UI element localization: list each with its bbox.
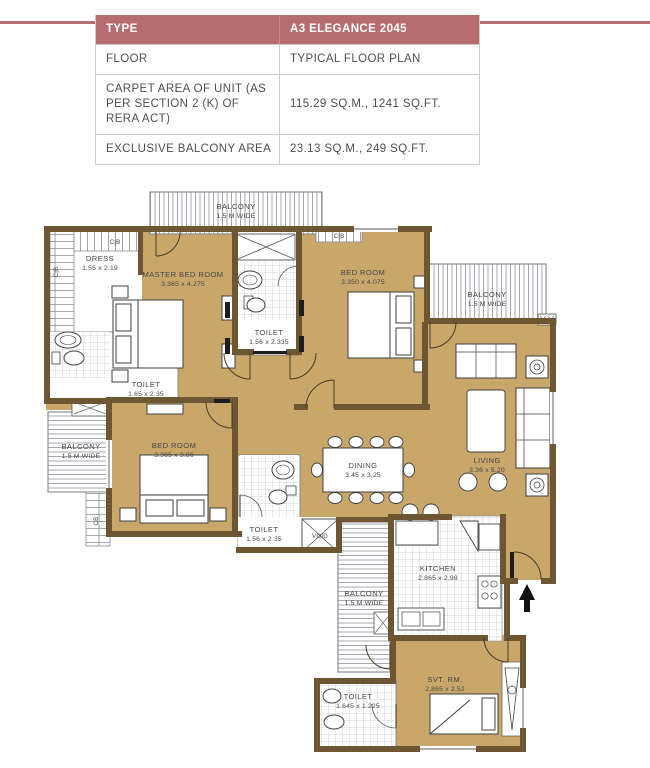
toilet-bottom-room	[316, 680, 396, 750]
chair-icon	[349, 437, 363, 448]
side-table-icon	[210, 508, 226, 521]
planter-icon	[526, 474, 548, 496]
basin-icon	[324, 715, 344, 729]
label-dress: DRESS	[86, 254, 114, 263]
chair-icon	[349, 493, 363, 504]
label-balcony-left-dims: 1.5 M WIDE	[62, 453, 101, 460]
pillow-icon	[116, 336, 131, 363]
chair-icon	[370, 437, 384, 448]
label-toilet-left: TOILET	[132, 380, 161, 389]
label-toilet-mid-dims: 1.56 x 2.35	[246, 536, 282, 543]
side-table-icon	[120, 508, 136, 521]
ironing-room	[502, 662, 522, 736]
wc-icon	[323, 689, 341, 703]
pillow-icon	[482, 698, 495, 730]
wardrobe-icon	[50, 231, 74, 333]
sofa-icon	[456, 344, 516, 378]
chair-icon	[389, 437, 403, 448]
center-table-icon	[467, 390, 505, 452]
label-dining-dims: 3.45 x 3.25	[345, 472, 381, 479]
label-toilet-top-dims: 1.56 x 2.335	[249, 339, 289, 346]
label-toilet-bottom-dims: 1.645 x 1.225	[336, 703, 380, 710]
pouf-icon	[459, 473, 477, 491]
wc-icon	[269, 490, 287, 504]
chair-icon	[312, 463, 323, 477]
label-balcony-right-dims: 1.5 M WIDE	[468, 301, 507, 308]
pillow-icon	[116, 304, 131, 331]
label-toilet-left-dims: 1.65 x 2.35	[128, 391, 164, 398]
pillow-icon	[396, 328, 411, 355]
label-toilet-bottom: TOILET	[344, 692, 373, 701]
counter-icon	[396, 521, 438, 545]
label-kitchen-dims: 2.865 x 2.98	[418, 575, 458, 582]
pouf-icon	[489, 473, 507, 491]
label-toilet-top: TOILET	[255, 328, 284, 337]
label-bed3: BED ROOM	[152, 441, 197, 450]
tv-unit-icon	[147, 404, 183, 414]
wc-icon	[247, 298, 265, 312]
label-cb-left-mid: CB	[93, 517, 100, 526]
label-bed3-dims: 3.365 x 3.86	[154, 452, 194, 459]
pillow-icon	[177, 500, 204, 516]
label-master-dims: 3.365 x 4.275	[161, 281, 205, 288]
chair-icon	[370, 493, 384, 504]
label-bed2-dims: 3.350 x 4.075	[341, 279, 385, 286]
label-balcony-top-dims: 1.5 M WIDE	[217, 213, 256, 220]
fridge-icon	[479, 524, 500, 550]
floor-plan-drawing: BALCONY 1.5 M WIDE DRESS 1.55 x 2.19 MAS…	[0, 0, 650, 768]
label-balcony-top: BALCONY	[216, 202, 255, 211]
label-balcony-right: BALCONY	[467, 290, 506, 299]
sofa-icon	[516, 388, 550, 468]
label-balcony-bottom-dims: 1.5 M WIDE	[345, 600, 384, 607]
servant-bed	[430, 694, 498, 734]
chair-icon	[328, 493, 342, 504]
label-living: LIVING	[473, 456, 500, 465]
chair-icon	[404, 463, 415, 477]
side-table-icon	[112, 370, 128, 382]
label-dress-dims: 1.55 x 2.19	[82, 265, 118, 272]
pillow-icon	[396, 296, 411, 323]
basin-icon	[272, 461, 294, 479]
label-servant-dims: 2.865 x 2.52	[425, 686, 465, 693]
side-table-icon	[112, 286, 128, 298]
label-servant: SVT. RM.	[427, 675, 462, 684]
wc-icon	[64, 351, 84, 365]
label-void: VOID	[312, 533, 328, 540]
label-dining: DINING	[349, 461, 378, 470]
basin-icon	[238, 271, 262, 289]
pillow-icon	[146, 500, 173, 516]
label-toilet-mid: TOILET	[250, 525, 279, 534]
floorplan-sheet: { "accent_color": "#b76d70", "spec_table…	[0, 0, 650, 768]
label-balcony-left: BALCONY	[61, 442, 100, 451]
label-living-dims: 3.36 x 5.20	[469, 467, 505, 474]
label-cb-bed2: C|B	[334, 233, 345, 240]
label-bed2: BED ROOM	[341, 268, 386, 277]
chair-icon	[328, 437, 342, 448]
label-master: MASTER BED ROOM	[142, 270, 223, 279]
basin-icon	[55, 332, 81, 348]
label-kitchen: KITCHEN	[420, 564, 456, 573]
dining-table-icon	[323, 448, 403, 492]
wardrobe-icon	[74, 231, 142, 251]
label-cb-dress-left: C|B	[53, 267, 60, 278]
label-cb-dress-top: C|B	[110, 239, 121, 246]
planter-icon	[526, 356, 548, 378]
chair-icon	[389, 493, 403, 504]
label-balcony-bottom: BALCONY	[344, 589, 383, 598]
entry-arrow-icon	[519, 584, 535, 612]
stove-icon	[478, 576, 501, 608]
